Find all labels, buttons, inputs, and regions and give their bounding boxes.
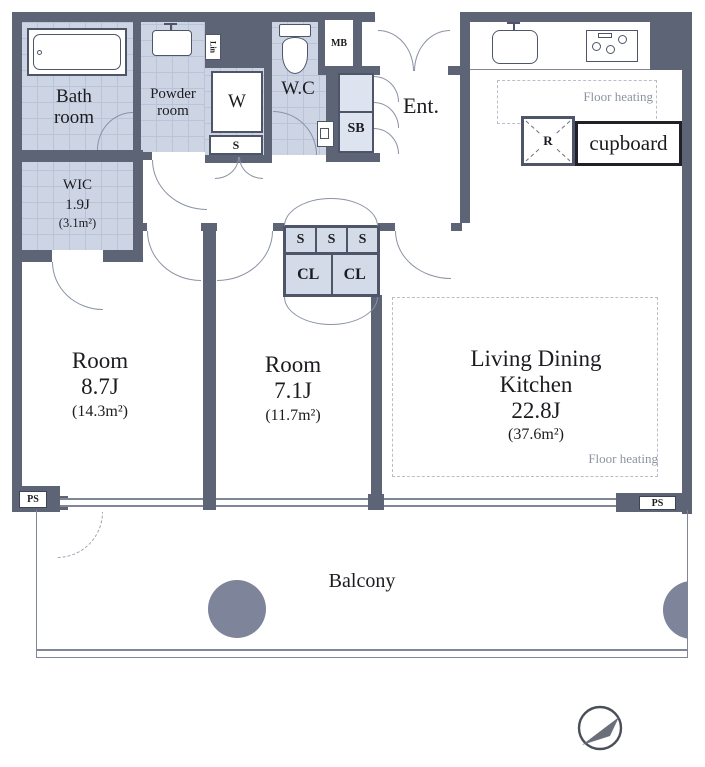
wall-right: [682, 12, 692, 514]
wall-entry-stub: [448, 66, 462, 75]
toilet-tank-icon: [279, 24, 311, 37]
wall-window-stub-b: [368, 494, 384, 510]
powder-faucet-icon: [170, 24, 172, 31]
wall-wic-bottom-a: [12, 250, 52, 262]
entry-door-right-arc: [414, 30, 450, 71]
wall-hall-a: [133, 223, 147, 231]
wall-hall-b: [201, 223, 217, 231]
wall-room-divider: [203, 231, 216, 498]
stove-burner-3-icon: [618, 35, 627, 44]
ldk-door-arc: [395, 231, 451, 279]
ps-left-label: PS: [27, 494, 39, 505]
closet-s-3: S: [348, 228, 377, 252]
ps-right-label: PS: [652, 498, 664, 509]
balcony-partition-arc: [57, 512, 103, 558]
fridge-box: R: [521, 116, 575, 166]
shoe-box-door-arc-3: [374, 128, 399, 154]
closet-top-door-arc-2: [331, 198, 378, 226]
label-room2: Room7.1J (11.7m²): [228, 352, 358, 424]
powder-faucet-bar-icon: [164, 23, 177, 25]
ps-left-box: PS: [19, 491, 47, 508]
storage-small-box: S: [209, 135, 263, 155]
label-ldk: Living DiningKitchen22.8J (37.6m²): [447, 346, 625, 444]
closet-cl-row: CL CL: [286, 255, 377, 294]
closet-top-door-arc-1: [284, 198, 331, 226]
floor-heating-kitchen-label: Floor heating: [545, 90, 653, 105]
mb-label: MB: [331, 38, 347, 49]
wall-kitchen-left: [460, 12, 470, 223]
storage-small-label: S: [233, 138, 240, 153]
kitchen-faucet-bar-icon: [507, 22, 520, 24]
wic-door-arc: [52, 262, 103, 310]
kitchen-sink-icon: [492, 30, 538, 64]
ps-right-box: PS: [639, 496, 676, 510]
wall-window-stub-a: [203, 494, 216, 510]
toilet-bowl-icon: [282, 37, 308, 74]
wall-wc-left: [264, 22, 272, 163]
linen-box: Lin: [205, 34, 221, 60]
floor-heating-ldk-label: Floor heating: [548, 452, 658, 467]
storage-bifold-arc-1: [215, 157, 239, 179]
label-room1: Room8.7J (14.3m²): [35, 348, 165, 420]
wall-bath-bottom: [12, 150, 143, 162]
entry-door-left-arc: [378, 30, 414, 71]
shoe-box-label: SB: [347, 121, 364, 137]
room2-window: [216, 498, 368, 507]
closet-s-2: S: [317, 228, 348, 252]
wall-counter-right: [650, 12, 692, 70]
label-bathroom: Bathroom: [22, 86, 126, 129]
mb-box: MB: [325, 20, 353, 66]
wall-hall-e: [451, 223, 462, 231]
wc-heater-inner: [320, 128, 329, 139]
room1-door-arc: [147, 231, 201, 281]
compass-icon: [576, 704, 624, 752]
wall-under-sb: [326, 153, 380, 162]
label-balcony: Balcony: [302, 570, 422, 592]
shoe-box: SB: [338, 73, 374, 153]
bathtub-drain-icon: [37, 50, 42, 55]
closet-bottom-door-arc-1: [284, 297, 331, 325]
label-wc: W.C: [272, 78, 324, 99]
wall-wic-right: [133, 162, 143, 262]
washer-box: W: [211, 71, 263, 133]
powder-door-arc: [152, 160, 207, 210]
cupboard-label: cupboard: [589, 131, 667, 156]
washer-label: W: [228, 91, 246, 113]
stove-grill-icon: [598, 33, 612, 38]
floor-plan: MB Lin W S SB PS PS Floor heating R cupb…: [0, 0, 705, 767]
stove-burner-1-icon: [592, 42, 601, 51]
balcony-pillar-left: [208, 580, 266, 638]
kitchen-faucet-icon: [513, 23, 515, 31]
label-wic: WIC1.9J (3.1m²): [25, 176, 130, 231]
ldk-window: [384, 498, 616, 507]
fridge-label: R: [541, 133, 554, 149]
closet-cl-2: CL: [333, 255, 378, 294]
linen-label: Lin: [209, 41, 218, 53]
room2-door-arc: [217, 231, 273, 281]
storage-bifold-arc-2: [239, 157, 263, 179]
wall-room2-ldk: [371, 295, 382, 498]
closet-s-1: S: [286, 228, 317, 252]
label-entrance: Ent.: [390, 94, 452, 119]
powder-sink-icon: [152, 30, 192, 56]
wall-powder-bottom: [141, 152, 152, 160]
closet-cl-1: CL: [286, 255, 333, 294]
balcony-pillar-right: [663, 581, 688, 639]
shoe-box-divider: [340, 111, 372, 113]
closet-block: S S S CL CL: [283, 225, 380, 297]
stove-burner-2-icon: [606, 45, 615, 54]
wall-hall-d: [378, 223, 395, 231]
closet-s-row: S S S: [286, 228, 377, 255]
bathtub-inner: [33, 34, 121, 70]
wall-wic-bottom-b: [103, 250, 143, 262]
label-powder-room: Powderroom: [139, 86, 207, 120]
balcony-inner-line: [37, 649, 688, 651]
room1-window: [60, 498, 203, 507]
cupboard-box: cupboard: [575, 121, 682, 166]
